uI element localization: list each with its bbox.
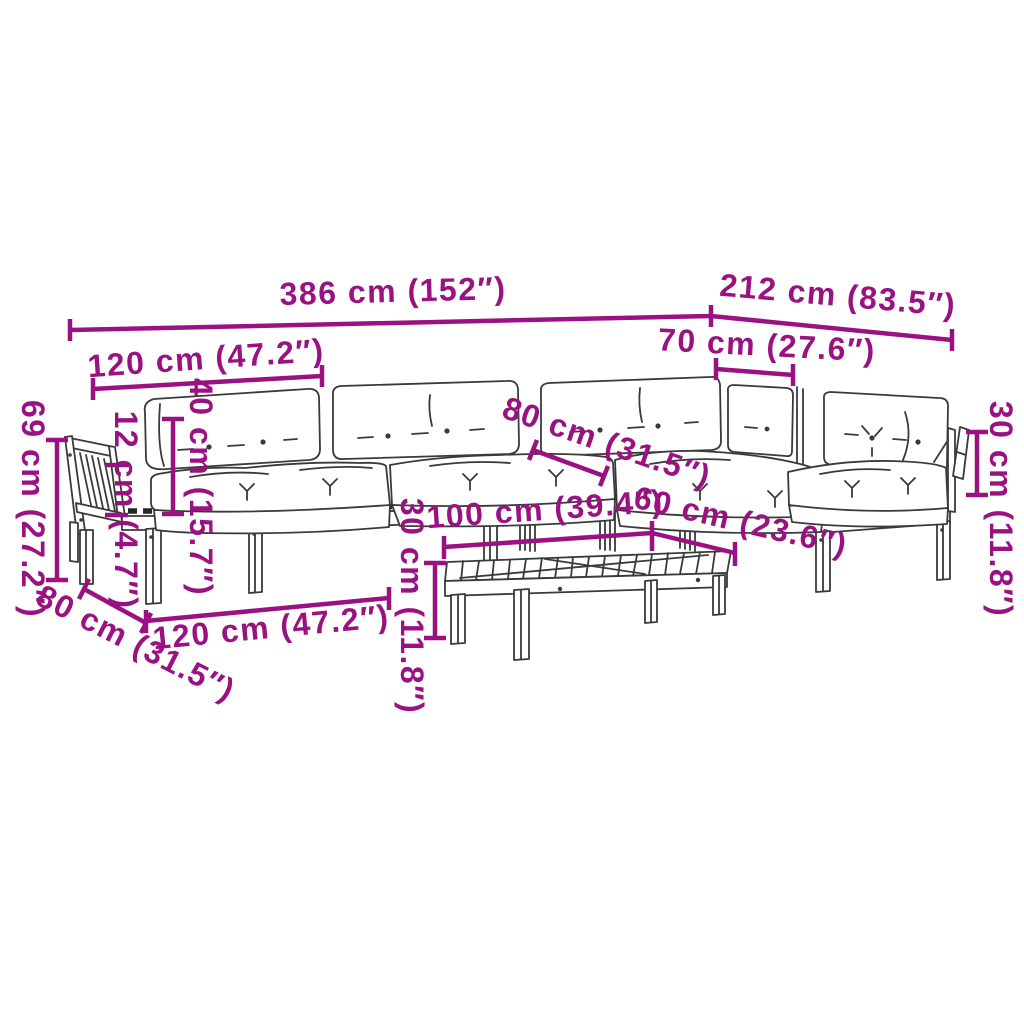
seat-cushion-right-wing (788, 461, 948, 527)
dimension-label-table-height: 30 cm (11.8″) (394, 498, 430, 714)
dimension-label-right-arm-height: 30 cm (11.8″) (983, 401, 1019, 617)
dimension-label-seat-cushion-thickness: 12 cm (4.7″) (108, 411, 144, 610)
dimension-right-arm-height: 30 cm (11.8″) (966, 401, 1019, 617)
dimension-label-total-width: 386 cm (152″) (279, 270, 507, 312)
coffee-table-drawing (445, 551, 731, 660)
back-cushion-right-wing (824, 392, 948, 470)
dimension-seat-cushion-thickness: 12 cm (4.7″) (105, 411, 144, 610)
dimension-label-back-cushion-height: 40 cm (15.7″) (183, 378, 219, 596)
dimension-label-wing-length: 212 cm (83.5″) (718, 267, 958, 324)
dimension-total-width: 386 cm (152″) (70, 270, 711, 341)
product-dimension-image: 386 cm (152″) 212 cm (83.5″) 120 cm (47.… (0, 0, 1024, 1024)
dimension-label-left-module-width-bottom: 120 cm (47.2″) (151, 598, 391, 657)
back-cushion-middle (333, 381, 519, 459)
dimension-diagram-svg: 386 cm (152″) 212 cm (83.5″) 120 cm (47.… (0, 0, 1024, 1024)
dimension-corner-seat-width: 70 cm (27.6″) (657, 321, 877, 386)
